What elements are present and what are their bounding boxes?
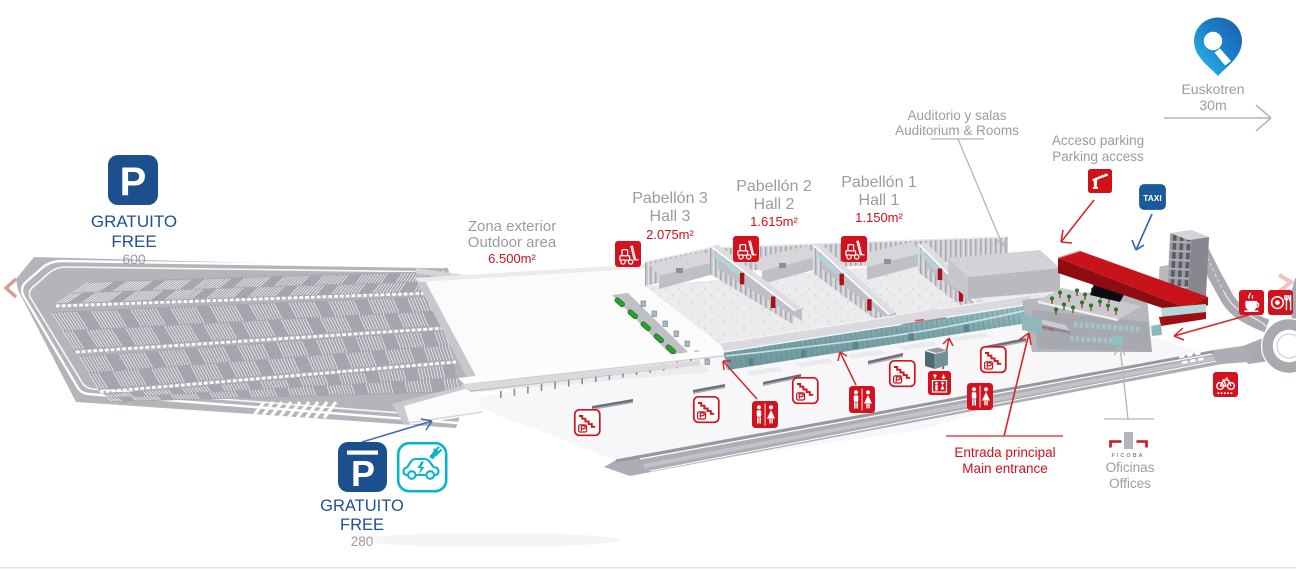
svg-text:FREE: FREE xyxy=(340,516,384,534)
svg-text:Hall 3: Hall 3 xyxy=(650,208,691,225)
svg-text:Pabellón 3: Pabellón 3 xyxy=(632,190,708,207)
svg-text:Main entrance: Main entrance xyxy=(962,461,1048,476)
svg-text:1.615m²: 1.615m² xyxy=(750,214,798,229)
svg-text:GRATUITO: GRATUITO xyxy=(320,497,404,515)
svg-text:30m: 30m xyxy=(1199,97,1226,113)
svg-text:Hall 2: Hall 2 xyxy=(754,196,795,213)
svg-text:FICOBA: FICOBA xyxy=(1111,453,1144,459)
svg-text:GRATUITO: GRATUITO xyxy=(91,212,177,231)
svg-text:Pabellón 1: Pabellón 1 xyxy=(841,174,917,191)
svg-text:P: P xyxy=(120,160,147,204)
svg-text:Parking access: Parking access xyxy=(1052,149,1144,164)
svg-text:Acceso parking: Acceso parking xyxy=(1052,133,1144,148)
svg-text:Oficinas: Oficinas xyxy=(1106,460,1155,475)
svg-text:1.150m²: 1.150m² xyxy=(855,210,903,225)
svg-text:6.500m²: 6.500m² xyxy=(488,251,536,266)
svg-text:Auditorio y salas: Auditorio y salas xyxy=(907,108,1006,123)
svg-text:2.075m²: 2.075m² xyxy=(646,227,694,242)
svg-text:Pabellón 2: Pabellón 2 xyxy=(736,178,812,195)
svg-text:P: P xyxy=(351,453,375,494)
svg-text:Euskotren: Euskotren xyxy=(1181,81,1244,97)
svg-text:FREE: FREE xyxy=(111,232,156,251)
svg-text:Outdoor area: Outdoor area xyxy=(468,234,557,251)
svg-text:280: 280 xyxy=(351,534,374,549)
svg-text:TAXI: TAXI xyxy=(1143,193,1161,203)
svg-text:600: 600 xyxy=(122,251,146,267)
svg-text:Auditorium & Rooms: Auditorium & Rooms xyxy=(895,123,1019,138)
svg-text:Hall 1: Hall 1 xyxy=(859,192,900,209)
svg-text:Entrada principal: Entrada principal xyxy=(954,445,1055,460)
svg-text:Offices: Offices xyxy=(1109,476,1151,491)
svg-text:Zona exterior: Zona exterior xyxy=(468,218,556,235)
